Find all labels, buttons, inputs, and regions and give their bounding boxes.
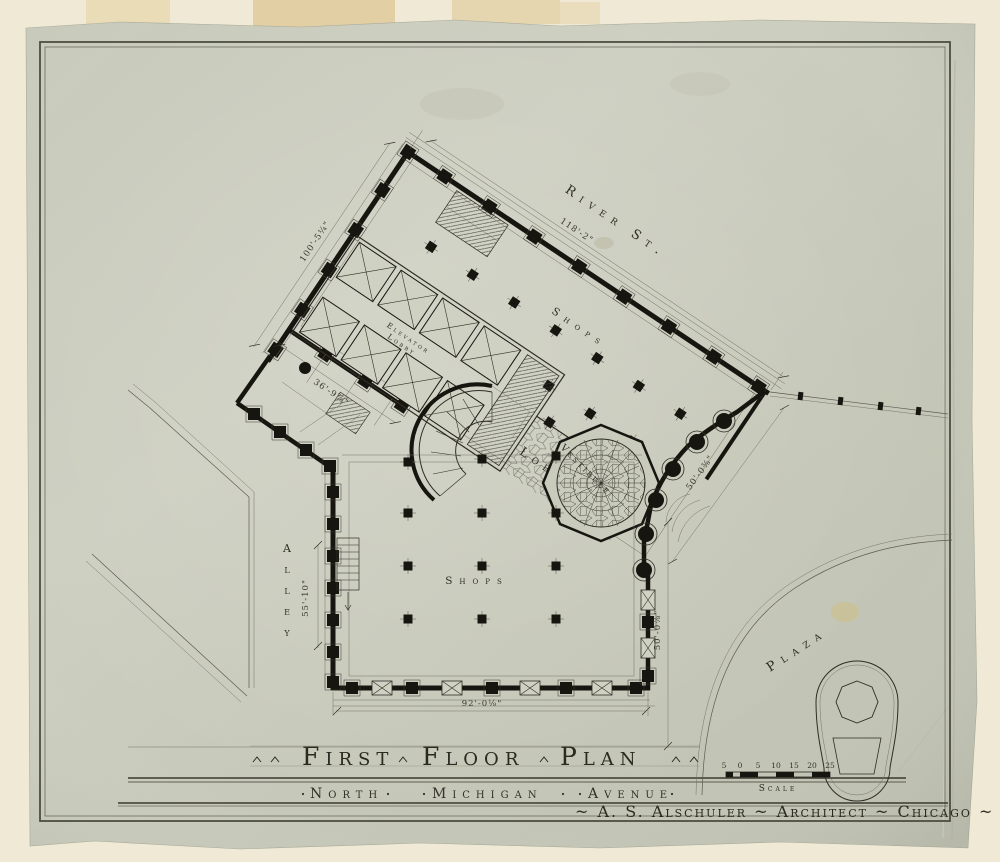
subtitle-word-avenue: Avenue [587, 786, 673, 802]
title-word-floor: Floor [422, 742, 524, 771]
svg-text:50'-0⅞": 50'-0⅞" [653, 610, 663, 651]
scale-tick: 15 [789, 761, 799, 770]
scale-tick: 0 [738, 761, 743, 770]
architect-credit: ~ A. S. Alschuler ~ Architect ~ Chicago … [575, 802, 994, 821]
title-word-first: First [302, 742, 394, 771]
subtitle-word-north: North [310, 786, 383, 802]
svg-text:92'-0⅛": 92'-0⅛" [462, 699, 503, 709]
scale-tick: 5 [756, 761, 761, 770]
scale-tick: 20 [807, 761, 817, 770]
shops-lower-label: Shops [445, 575, 509, 587]
scanned-drawing-page: Elevator Lobby Shops Lobby 118'-2" 100'-… [0, 0, 1000, 862]
scale-tick: 10 [771, 761, 781, 770]
svg-text:55'-10": 55'-10" [301, 579, 311, 617]
scale-tick: 25 [825, 761, 835, 770]
floor-plan-canvas: Elevator Lobby Shops Lobby 118'-2" 100'-… [0, 0, 1000, 862]
subtitle-word-michigan: Michigan [432, 786, 543, 802]
title-word-plan: Plan [560, 742, 642, 771]
scale-label: Scale [759, 784, 797, 794]
scale-tick: 5 [722, 761, 727, 770]
